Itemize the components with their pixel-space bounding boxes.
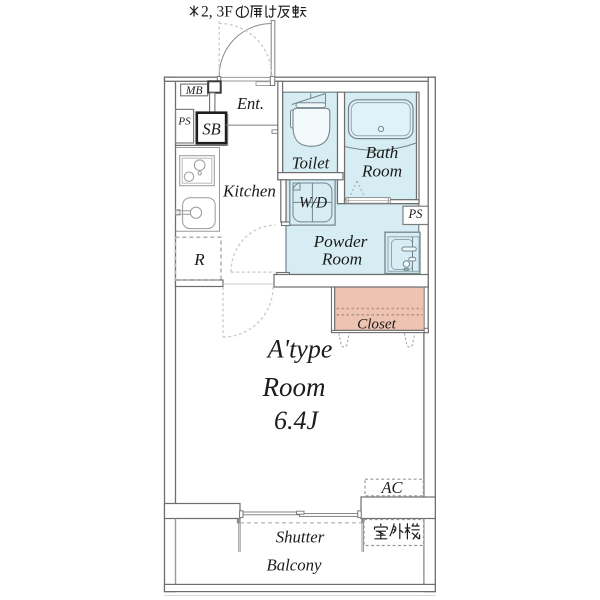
svg-text:SB: SB (202, 120, 220, 139)
svg-text:AC: AC (380, 478, 403, 497)
svg-text:A'type: A'type (266, 335, 333, 364)
svg-text:Room: Room (321, 250, 362, 269)
svg-text:PS: PS (408, 207, 424, 221)
svg-text:Ent.: Ent. (236, 94, 264, 113)
svg-text:Balcony: Balcony (267, 556, 323, 575)
svg-text:2, 3F: 2, 3F (201, 4, 233, 21)
svg-text:MB: MB (185, 85, 203, 97)
svg-text:Bath: Bath (366, 143, 399, 162)
svg-text:Powder: Powder (313, 232, 368, 251)
svg-text:Room: Room (361, 161, 402, 180)
svg-text:PS: PS (177, 116, 191, 128)
svg-text:Kitchen: Kitchen (222, 182, 276, 201)
svg-text:6.4J: 6.4J (274, 406, 320, 435)
svg-text:Shutter: Shutter (276, 528, 325, 547)
svg-text:Toilet: Toilet (292, 154, 330, 173)
svg-text:R: R (193, 250, 205, 269)
svg-text:W/D: W/D (299, 194, 327, 211)
svg-text:Closet: Closet (357, 315, 397, 332)
svg-text:Room: Room (262, 372, 326, 402)
